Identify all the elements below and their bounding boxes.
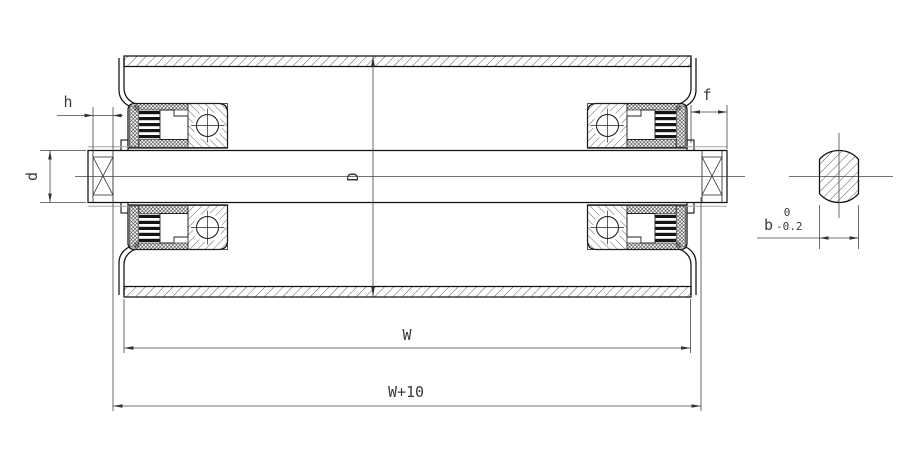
- bearing-unit-top-left: [119, 58, 228, 152]
- label-d: d: [23, 172, 41, 181]
- dimension-b: b 0 -0.2: [757, 205, 859, 249]
- label-W-plus-10: W+10: [388, 383, 424, 401]
- label-b: b: [764, 216, 773, 234]
- technical-drawing-canvas: D h d f W: [0, 0, 908, 451]
- label-h: h: [63, 93, 72, 111]
- label-D: D: [344, 172, 362, 181]
- label-f: f: [702, 86, 711, 104]
- shell-bottom-wall: [124, 287, 691, 298]
- shaft-section-view: [789, 133, 893, 218]
- dimension-W: W: [124, 299, 691, 353]
- dimension-h: h: [57, 93, 123, 411]
- shell-top-wall: [124, 56, 691, 67]
- label-W: W: [402, 326, 412, 344]
- roller-drawing-svg: D h d f W: [0, 0, 908, 451]
- label-b-tolerance-lower: -0.2: [776, 220, 803, 233]
- bearing-unit-bottom-left: [119, 201, 228, 295]
- bearing-unit-top-right: [588, 58, 697, 152]
- label-b-tolerance-upper: 0: [784, 206, 791, 219]
- bearing-unit-bottom-right: [588, 201, 697, 295]
- dimension-f: f: [691, 86, 727, 149]
